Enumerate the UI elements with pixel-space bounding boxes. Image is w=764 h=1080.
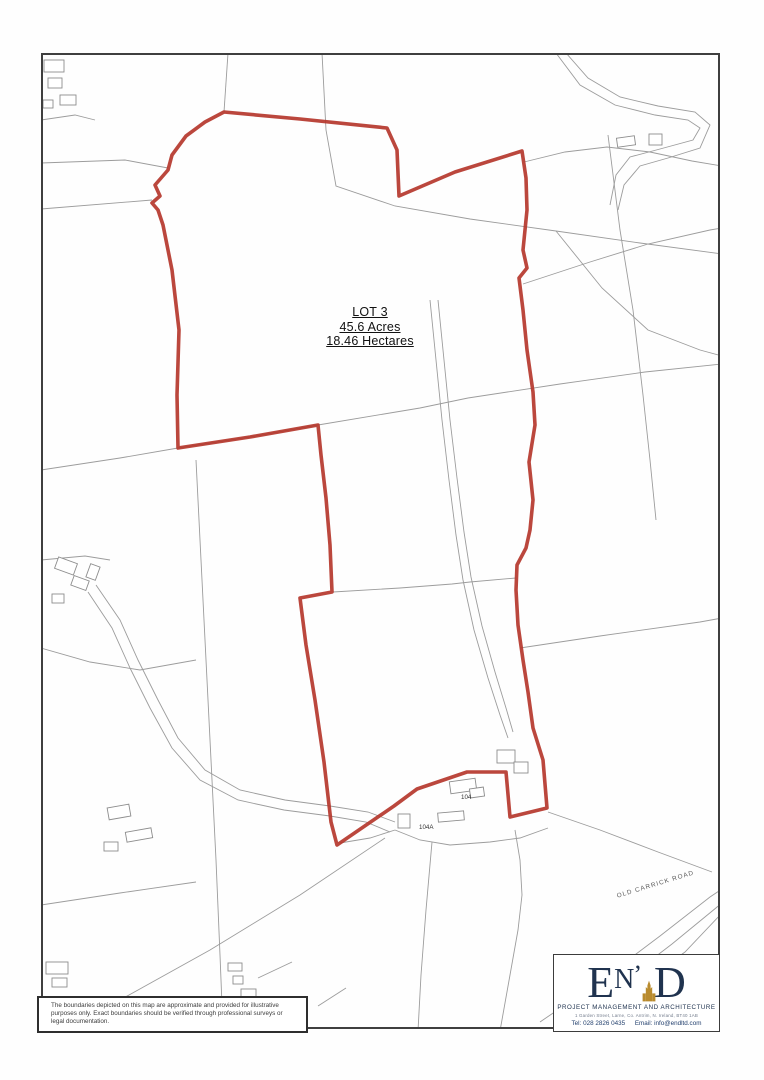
logo-letter-n: N — [614, 967, 634, 993]
field-boundary-line — [88, 592, 390, 832]
field-boundary-line — [468, 364, 722, 398]
building-footprint — [469, 787, 484, 798]
logo-wordmark: E N ’ D — [554, 957, 719, 1003]
disclaimer-line-1: The boundaries depicted on this map are … — [51, 1002, 298, 1010]
field-boundary-line — [41, 200, 152, 209]
building-footprint — [60, 95, 76, 105]
field-boundary-line — [556, 231, 722, 356]
building-footprint — [55, 557, 78, 575]
logo-tagline: PROJECT MANAGEMENT AND ARCHITECTURE — [554, 1004, 719, 1011]
disclaimer-line-3: legal documentation. — [51, 1018, 298, 1026]
logo-telephone: Tel: 028 2826 0435 — [568, 1020, 630, 1027]
field-boundary-line — [41, 556, 110, 560]
field-boundary-line — [41, 160, 168, 168]
building-footprint — [48, 78, 62, 88]
field-boundary-line — [395, 828, 548, 845]
field-boundary-line — [524, 147, 722, 166]
building-footprint — [71, 576, 89, 591]
field-boundary-line — [318, 988, 346, 1006]
logo-letter-d: D — [654, 963, 686, 1003]
field-boundary-line — [608, 135, 656, 520]
building-footprint — [497, 750, 515, 763]
logo-letter-e: E — [587, 963, 614, 1003]
building-footprint — [43, 100, 53, 108]
lot-hectares: 18.46 Hectares — [300, 334, 440, 349]
field-boundary-line — [196, 460, 223, 1031]
building-footprint — [228, 963, 242, 971]
building-footprint — [233, 976, 243, 984]
lot-acres: 45.6 Acres — [300, 320, 440, 335]
logo-address: 1 Garden Street, Larne, Co. Antrim, N. I… — [554, 1013, 719, 1018]
field-boundary-line — [418, 842, 432, 1031]
company-logo-box: E N ’ D PROJECT MANAGEMENT AND ARCHITECT… — [553, 954, 720, 1032]
building-footprint — [52, 978, 67, 987]
lot-number: LOT 3 — [300, 305, 440, 320]
building-footprint — [125, 828, 152, 842]
field-boundary-line — [523, 228, 722, 284]
building-footprint — [514, 762, 528, 773]
building-footprint — [649, 134, 662, 145]
building-footprint — [107, 804, 131, 820]
field-boundary-line — [41, 398, 468, 470]
field-boundary-line — [566, 53, 710, 210]
field-boundary-line — [258, 962, 292, 978]
building-footprint — [438, 811, 465, 822]
building-footprint — [44, 60, 64, 72]
field-boundary-line — [556, 53, 700, 205]
disclaimer-line-2: purposes only. Exact boundaries should b… — [51, 1010, 298, 1018]
field-boundary-line — [333, 578, 516, 592]
building-footprint — [398, 814, 410, 828]
building-number-label: 104A — [419, 824, 434, 831]
logo-email: Email: info@endltd.com — [631, 1020, 706, 1027]
building-footprint — [104, 842, 118, 851]
lot-area-label: LOT 3 45.6 Acres 18.46 Hectares — [300, 305, 440, 349]
map-canvas: OLD CARRICK ROAD104104A — [0, 0, 764, 1080]
field-boundary-line — [430, 300, 508, 738]
building-footprint — [86, 564, 100, 581]
disclaimer-box: The boundaries depicted on this map are … — [37, 996, 308, 1033]
road-label: OLD CARRICK ROAD — [616, 869, 695, 899]
building-footprint — [616, 136, 635, 147]
field-boundary-line — [41, 648, 196, 670]
field-boundary-line — [438, 300, 513, 732]
field-boundary-line — [500, 830, 522, 1031]
field-boundary-line — [548, 812, 712, 872]
scanned-map-page: OLD CARRICK ROAD104104A LOT 3 45.6 Acres… — [0, 0, 764, 1080]
logo-apostrophe: ’ — [633, 963, 642, 987]
building-footprint — [52, 594, 64, 603]
building-number-label: 104 — [461, 794, 472, 801]
field-boundary-line — [41, 882, 196, 905]
field-boundary-line — [224, 53, 228, 112]
logo-contact: Tel: 028 2826 0435 Email: info@endltd.co… — [554, 1020, 719, 1027]
building-footprint — [46, 962, 68, 974]
field-boundary-line — [520, 618, 722, 648]
field-boundary-line — [41, 115, 95, 120]
field-boundary-line — [96, 585, 395, 822]
lot-boundary-outline — [152, 112, 547, 845]
